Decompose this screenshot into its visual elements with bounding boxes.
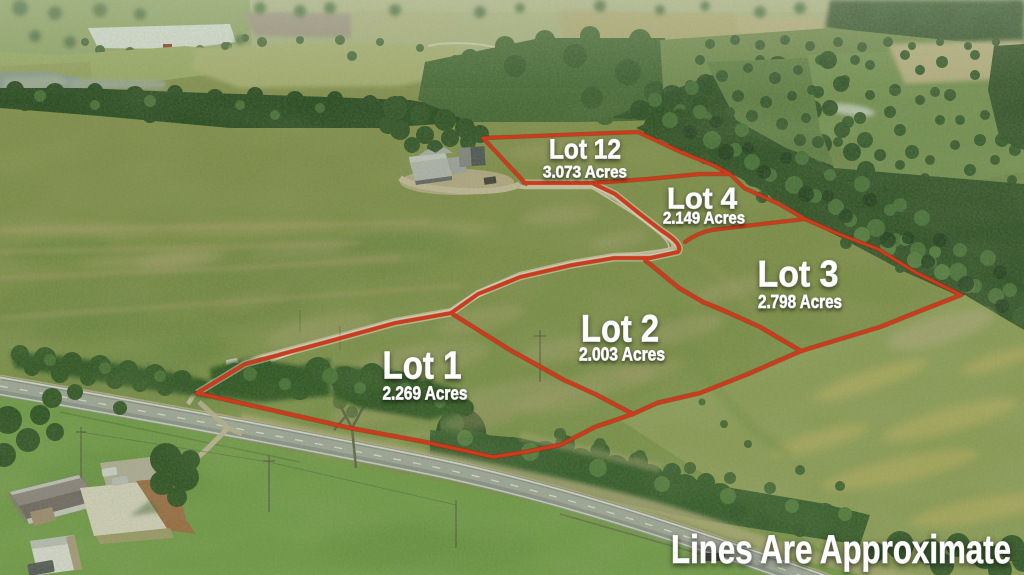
svg-text:Lines Are Approximate: Lines Are Approximate <box>671 528 1011 572</box>
svg-text:2.798 Acres: 2.798 Acres <box>758 292 842 312</box>
svg-text:2.269 Acres: 2.269 Acres <box>383 384 468 404</box>
svg-text:2.003 Acres: 2.003 Acres <box>579 345 665 365</box>
svg-text:Lot 3: Lot 3 <box>758 254 839 295</box>
svg-text:Lot 12: Lot 12 <box>549 134 621 165</box>
svg-text:3.073 Acres: 3.073 Acres <box>543 164 627 182</box>
svg-text:Lot 1: Lot 1 <box>383 345 462 388</box>
svg-text:2.149 Acres: 2.149 Acres <box>663 209 745 228</box>
